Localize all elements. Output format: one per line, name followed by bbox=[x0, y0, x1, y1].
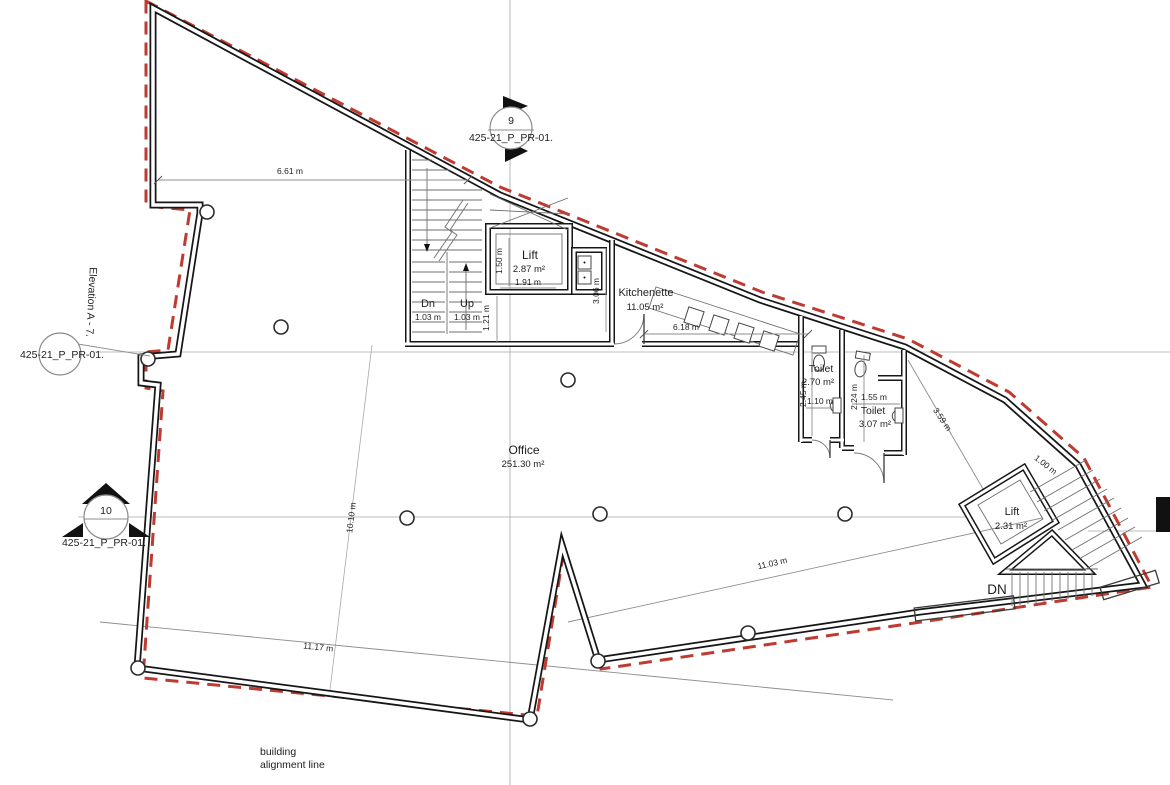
dim-toilet2-width: 1.55 m bbox=[861, 392, 887, 402]
section9-ref: 425-21_P_PR-01. bbox=[469, 132, 553, 144]
dim-lift-depth: 1.50 m bbox=[494, 248, 504, 274]
dim-top-left: 6.61 m bbox=[277, 166, 303, 176]
lift-main-name: Lift bbox=[522, 248, 539, 262]
toilet2-door-arc bbox=[854, 453, 884, 483]
dim-bottom-right: 11.03 m bbox=[757, 555, 789, 571]
toilet2-wc bbox=[852, 351, 870, 378]
stair-arrowhead-up bbox=[463, 263, 469, 271]
alignment-note: building alignment line bbox=[260, 746, 325, 771]
section10-number: 10 bbox=[100, 505, 112, 517]
section-marker-9: 9 425-21_P_PR-01. bbox=[469, 96, 553, 162]
office-area: 251.30 m² bbox=[502, 459, 545, 470]
dim-office-depth: 10.10 m bbox=[344, 502, 358, 534]
dim-landing: 1.21 m bbox=[481, 305, 491, 331]
toilet1-door-arc bbox=[812, 440, 830, 458]
toilet2-sink bbox=[892, 408, 903, 423]
dim-lift-width: 1.91 m bbox=[515, 277, 541, 287]
section10-wedge-left bbox=[62, 523, 83, 537]
elevation-label: Elevation A - 7. bbox=[83, 267, 99, 338]
kitchenette-door-arc bbox=[614, 314, 644, 344]
dim-shaft: 3.06 m bbox=[591, 278, 601, 304]
stair-dn-label: Dn bbox=[421, 298, 435, 310]
alignment-note-line2: alignment line bbox=[260, 759, 325, 771]
stair-treads-dn bbox=[1006, 569, 1098, 606]
lift-right-area: 2.31 m² bbox=[995, 521, 1027, 532]
dim-bottom-left: 11.17 m bbox=[303, 640, 334, 653]
stair-dn-dim: 1.03 m bbox=[415, 312, 441, 322]
stair-up-dim: 1.03 m bbox=[454, 312, 480, 322]
floor-plan: 9 425-21_P_PR-01. Elevation A - 7. 425-2… bbox=[0, 0, 1170, 785]
grid-lines bbox=[78, 0, 1170, 785]
stair-break-line-2 bbox=[439, 203, 468, 261]
alignment-note-line1: building bbox=[260, 746, 296, 758]
elevation-ref: 425-21_P_PR-01. bbox=[20, 349, 104, 361]
lift-main-area: 2.87 m² bbox=[513, 264, 545, 275]
office-name: Office bbox=[508, 443, 539, 457]
elevation-marker: Elevation A - 7. 425-21_P_PR-01. bbox=[20, 267, 150, 375]
building-outline bbox=[137, 8, 1143, 720]
section-marker-10: 10 425-21_P_PR-01. bbox=[62, 483, 150, 549]
stair-arrowhead-dn bbox=[424, 244, 430, 252]
lift-right-name: Lift bbox=[1005, 506, 1020, 518]
dim-toilet1-width: 1.10 m bbox=[807, 396, 833, 406]
stair-dn-right-label: DN bbox=[987, 582, 1007, 597]
section10-ref: 425-21_P_PR-01. bbox=[62, 537, 146, 549]
dim-toilet2-depth: 2.24 m bbox=[849, 384, 859, 410]
stair-up-label: Up bbox=[460, 298, 474, 310]
dim-diag-right: 3.59 m bbox=[931, 406, 954, 433]
kitchenette-name: Kitchenette bbox=[618, 287, 673, 299]
dim-kitchenette: 6.18 m bbox=[673, 322, 699, 332]
building-alignment-line bbox=[143, 1, 1152, 716]
dimension-labels: 6.61 m 1.50 m 1.91 m 1.21 m 3.06 m 6.18 … bbox=[277, 166, 1059, 654]
stair-break-line bbox=[434, 200, 463, 258]
kitchenette-area: 11.05 m² bbox=[627, 302, 664, 313]
toilet2-name: Toilet bbox=[861, 405, 886, 417]
section9-number: 9 bbox=[508, 115, 514, 127]
toilet1-name: Toilet bbox=[809, 363, 834, 375]
toilet2-area: 3.07 m² bbox=[859, 419, 891, 430]
dim-stair-flight: 1.00 m bbox=[1033, 453, 1060, 477]
stair-void-triangle bbox=[1005, 533, 1090, 572]
adjacent-wall-section bbox=[1156, 497, 1170, 532]
